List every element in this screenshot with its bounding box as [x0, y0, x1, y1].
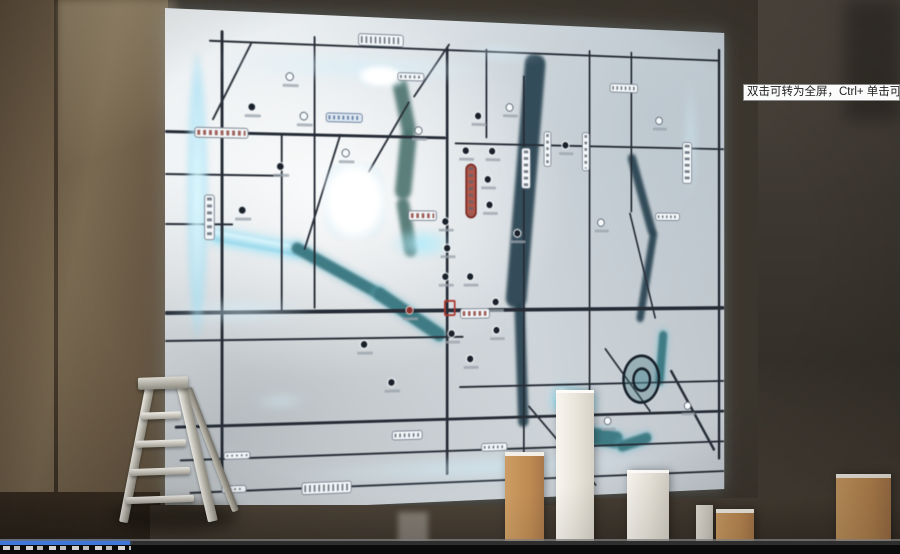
map-spiral-landmark-icon: [622, 354, 660, 404]
map-poi-icon: [493, 326, 501, 335]
map-poi-icon: [441, 272, 449, 281]
map-label-pill: [397, 72, 424, 82]
map-poi-icon: [342, 149, 350, 158]
map-poi-icon: [492, 298, 500, 307]
map-poi-icon: [360, 340, 368, 349]
player-controls-text: [3, 546, 131, 550]
led-glow: [252, 393, 309, 410]
map-road: [175, 410, 724, 429]
map-road: [281, 133, 283, 311]
map-road: [165, 336, 464, 342]
map-label-pill: [204, 194, 215, 240]
map-label-pill: [392, 430, 423, 441]
map-poi-icon: [484, 175, 492, 184]
map-label-pill: [326, 112, 363, 123]
map-label-pill: [481, 442, 507, 451]
map-label-pill: [655, 213, 680, 221]
fullscreen-tooltip: 双击可转为全屏，Ctrl+ 单击可转为: [743, 84, 900, 101]
map-highlight-box: [444, 300, 456, 316]
map-poi-icon: [562, 141, 570, 150]
map-road: [523, 75, 525, 464]
map-label-pill: [194, 127, 248, 139]
map-label-pill: [301, 481, 351, 496]
map-poi-icon: [488, 147, 496, 156]
map-road: [446, 47, 449, 475]
right-wall-shadow: [845, 0, 900, 120]
video-player-bar[interactable]: [0, 539, 900, 554]
map-poi-icon: [300, 112, 308, 121]
map-label-pill: [465, 163, 476, 218]
map-poi-icon: [597, 219, 605, 227]
map-poi-icon: [414, 126, 422, 135]
map-poi-icon: [655, 117, 662, 125]
map-river: [514, 303, 528, 427]
pedestal: [556, 390, 594, 554]
map-poi-icon: [513, 229, 521, 237]
player-control-bar[interactable]: [0, 545, 900, 554]
illuminated-map-board: [165, 8, 724, 514]
video-frame: 双击可转为全屏，Ctrl+ 单击可转为: [0, 0, 900, 554]
map-label-pill: [610, 83, 638, 93]
map-poi-icon: [466, 272, 474, 281]
map-label-pill: [582, 132, 590, 171]
map-poi-icon: [462, 146, 470, 155]
wall-light-sheen: [58, 0, 176, 190]
map-road: [459, 380, 724, 388]
map-poi-icon: [506, 103, 514, 112]
map-river: [210, 230, 301, 256]
map-poi-icon: [247, 102, 256, 111]
ladder-rung: [141, 411, 181, 419]
map-poi-icon: [276, 162, 285, 171]
map-poi-icon: [405, 306, 413, 315]
map-label-pill: [682, 142, 692, 184]
map-poi-icon: [443, 244, 451, 253]
led-glow: [212, 46, 501, 87]
map-poi-icon: [441, 217, 449, 226]
map-poi-icon: [238, 206, 247, 215]
led-glow: [460, 44, 543, 62]
map-label-pill: [223, 451, 250, 460]
map-road: [631, 52, 633, 213]
map-poi-icon: [387, 378, 395, 387]
map-label-pill: [521, 148, 530, 189]
map-poi-icon: [474, 112, 482, 121]
map-label-pill: [358, 33, 404, 47]
map-poi-icon: [604, 417, 612, 426]
map-poi-icon: [285, 72, 293, 81]
map-poi-icon: [466, 355, 474, 364]
map-label-pill: [544, 131, 552, 167]
map-label-pill: [460, 308, 490, 319]
map-poi-icon: [486, 201, 494, 210]
led-glow: [324, 163, 385, 239]
map-label-pill: [408, 210, 437, 221]
ladder-top-cap: [138, 376, 188, 390]
map-content-layer: [165, 8, 724, 514]
map-road: [718, 49, 720, 460]
led-glow: [165, 297, 314, 326]
map-poi-icon: [448, 329, 456, 338]
